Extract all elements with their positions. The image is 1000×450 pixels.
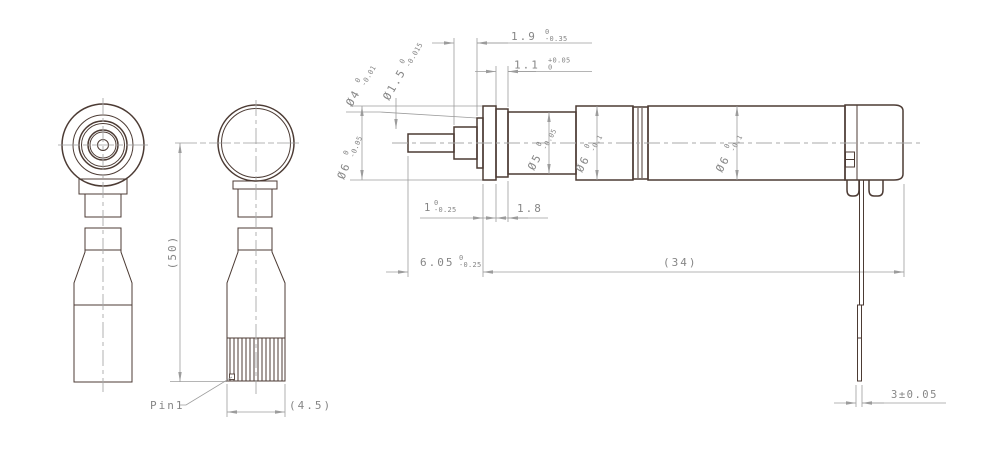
dim-value: Ø4 (343, 87, 363, 108)
inner-dimension-arrows (179, 106, 737, 405)
dim-value: Ø6 (713, 153, 733, 174)
dim-dia-body-front: Ø5 0 -0.05 (523, 124, 558, 172)
dim-dia-tip: Ø1.5 0 -0.015 (379, 38, 425, 103)
dim-flat-width: (4.5) (289, 399, 332, 412)
dim-tol-lower: -0.25 (434, 206, 457, 214)
dim-value: Ø6 (335, 160, 354, 181)
end-cap (845, 105, 903, 180)
dim-overall-height: (50) (166, 235, 179, 270)
terminal-lead-upper (860, 180, 864, 305)
dim-tol-lower: -0.01 (360, 64, 378, 88)
extension-lines (170, 38, 904, 417)
dia-step-leader (346, 112, 477, 118)
dim-value: 6.05 (420, 256, 455, 269)
mount-tab-right (869, 180, 883, 196)
centerlines (58, 98, 922, 394)
technical-drawing: 1.9 0 -0.35 1.1 +0.05 0 Ø4 0 -0.01 Ø1.5 … (0, 0, 1000, 450)
dim-tol-lower: 0 (548, 64, 553, 72)
dim-neck-length: 1.8 (517, 202, 543, 215)
flat-neck (238, 189, 272, 217)
dim-tol-lower: -0.05 (541, 128, 559, 152)
dim-value: Ø5 (525, 151, 545, 172)
dim-dia-step: Ø4 0 -0.01 (342, 61, 378, 109)
mount-tab-left (847, 180, 859, 196)
dim-groove-width: 1.1 +0.05 0 (514, 57, 571, 72)
dim-value: 1.1 (514, 59, 540, 72)
dim-value: Ø1.5 (380, 66, 409, 102)
dim-dia-body-rear: Ø6 0 -0.1 (711, 130, 744, 174)
flat-collar (233, 181, 277, 189)
terminal-lead-lower (858, 305, 862, 381)
dim-front-length: 6.05 0 -0.25 (420, 254, 482, 269)
dim-value: 1.9 (511, 30, 537, 43)
dim-value: (50) (166, 235, 179, 270)
dimension-texts: 1.9 0 -0.35 1.1 +0.05 0 Ø4 0 -0.01 Ø1.5 … (150, 28, 938, 412)
dim-tip-length: 1.9 0 -0.35 (511, 28, 568, 43)
dim-value: 1 (424, 202, 432, 214)
dim-flange-width: 1 0 -0.25 (424, 199, 457, 214)
dim-body-length: (34) (663, 256, 698, 269)
pin1-marker (230, 374, 235, 380)
dim-tol-lower: -0.25 (459, 261, 482, 269)
dimension-lines (180, 43, 946, 412)
dim-dia-flange: Ø6 0 -0.05 (333, 132, 364, 181)
drawing-sheet: 1.9 0 -0.35 1.1 +0.05 0 Ø4 0 -0.01 Ø1.5 … (0, 0, 1000, 450)
main-side-view (408, 105, 903, 381)
dim-tol-lower: -0.35 (545, 35, 568, 43)
dim-terminal-width: 3±0.05 (891, 389, 938, 401)
pin1-label: Pin1 (150, 399, 185, 412)
dim-tol-lower: -0.015 (404, 41, 424, 68)
